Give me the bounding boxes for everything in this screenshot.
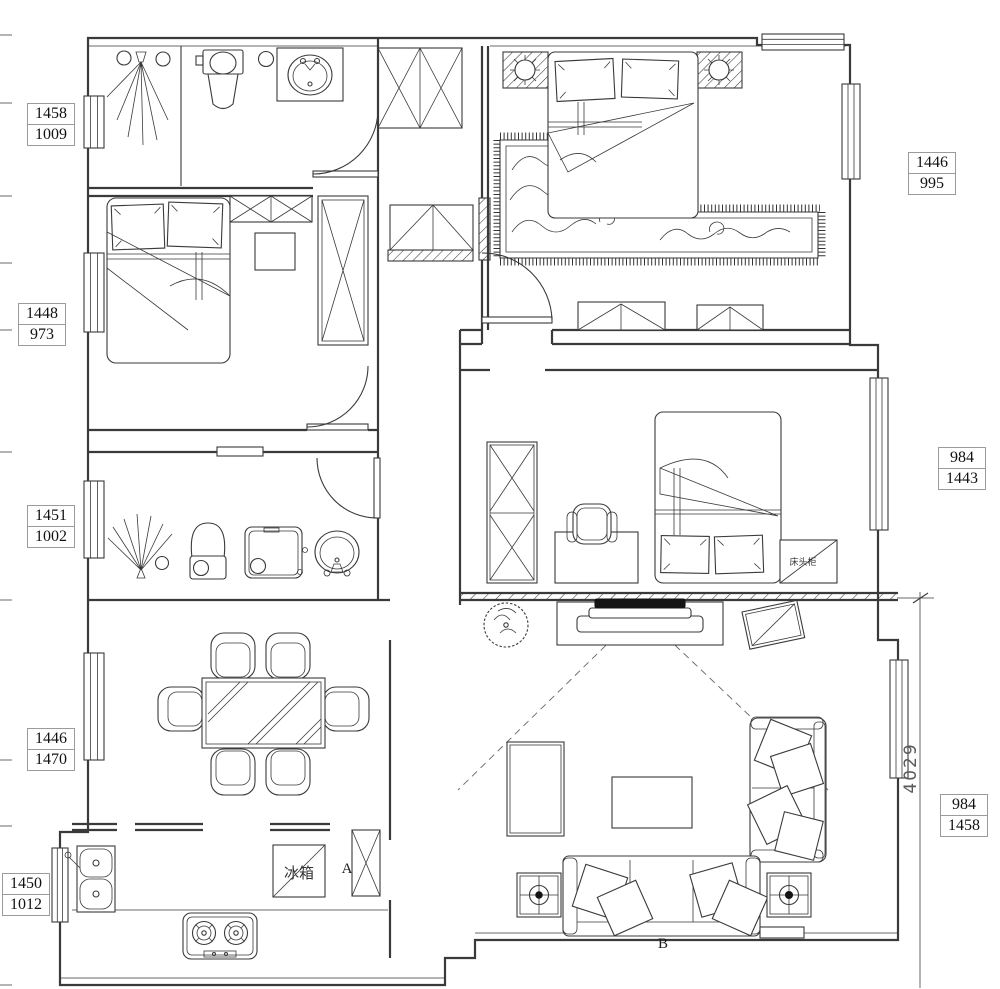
bed	[107, 198, 230, 363]
dining-chair	[211, 749, 255, 795]
dim-label-left-1: 1458 1009	[27, 103, 75, 146]
bedside-table	[255, 233, 295, 270]
dim-label-left-5: 1450 1012	[2, 873, 50, 916]
bed	[655, 412, 781, 583]
dim-value: 1450	[2, 873, 50, 895]
window-left-bath2	[84, 481, 104, 558]
bedroom-left	[107, 196, 368, 363]
dim-label-right-2: 984 1443	[938, 447, 986, 490]
dim-value: 1446	[27, 728, 75, 750]
picture-frame	[742, 600, 805, 649]
pillow	[555, 59, 615, 102]
dim-label-right-3: 984 1458	[940, 794, 988, 837]
dim-value: 1448	[18, 303, 66, 325]
kitchen-shaft-box	[352, 830, 380, 896]
window-left-dining	[84, 653, 104, 760]
marker-b-label: B	[658, 936, 668, 952]
hallway-elements	[378, 48, 473, 250]
marker-a-label: A	[342, 861, 353, 877]
wall-column-hatched	[479, 198, 490, 260]
nightstand-hatched	[697, 52, 742, 88]
pillow	[661, 536, 710, 574]
vertical-dimension-label: 4029	[901, 742, 921, 793]
wardrobe	[487, 442, 537, 583]
dim-value: 1451	[27, 505, 75, 527]
bath2-door	[317, 458, 380, 518]
wardrobe	[318, 196, 368, 345]
wall-band-hatched	[388, 250, 473, 261]
dining-room	[158, 633, 369, 795]
dimension-ticks-left	[0, 35, 12, 985]
dining-chair	[266, 749, 310, 795]
living-room: B	[458, 599, 828, 952]
toilet-icon	[190, 523, 226, 579]
loveseat	[748, 717, 826, 862]
window-right-master	[842, 84, 860, 179]
window-right-bedroom2	[870, 378, 888, 530]
dim-label-left-3: 1451 1002	[27, 505, 75, 548]
pillow	[111, 204, 165, 250]
bench-cabinet-triangle	[578, 302, 665, 330]
dining-table	[202, 678, 325, 748]
bedroom1-door	[307, 366, 368, 430]
rug	[507, 742, 564, 836]
gas-stove-icon	[183, 913, 257, 959]
dining-chair	[323, 687, 369, 731]
kitchen: 冰箱 A	[65, 830, 388, 959]
bath1-door	[313, 109, 378, 177]
dim-value: 1012	[2, 894, 50, 916]
dim-label-left-2: 1448 973	[18, 303, 66, 346]
dining-chair	[211, 633, 255, 679]
double-bed	[548, 52, 698, 218]
pillow	[621, 59, 678, 99]
sofa	[563, 856, 768, 936]
vent-sill	[217, 447, 263, 456]
window-top-master	[762, 34, 844, 50]
bedroom-right: 床头柜	[487, 412, 837, 583]
refrigerator-icon: 冰箱	[273, 845, 325, 897]
master-bedroom	[497, 52, 822, 330]
threshold-sill	[760, 927, 804, 938]
shaft-box	[378, 48, 462, 128]
kitchen-sink-icon	[65, 846, 115, 912]
dim-value: 995	[908, 173, 956, 195]
nightstand-label: 床头柜	[789, 556, 816, 567]
desk-chair	[567, 504, 617, 544]
dimension-line-right: 4029	[897, 592, 934, 988]
pillow	[167, 202, 223, 248]
dim-value: 1443	[938, 468, 986, 490]
cabinet-x-strip	[230, 196, 312, 222]
side-table-lamp	[767, 873, 811, 917]
washing-machine-icon	[245, 527, 308, 578]
nightstand-hatched	[503, 52, 548, 88]
shower-icon	[108, 514, 172, 578]
dim-value: 984	[938, 447, 986, 469]
dim-value: 984	[940, 794, 988, 816]
toilet-icon	[196, 50, 243, 109]
dining-chair	[266, 633, 310, 679]
window-kitchen	[52, 848, 68, 922]
nightstand-labeled: 床头柜	[780, 540, 837, 583]
dim-value: 1009	[27, 124, 75, 146]
bench-cabinet-triangle	[697, 305, 763, 330]
dim-value: 1458	[940, 815, 988, 837]
wash-basin-icon	[315, 531, 359, 576]
hall-cabinet-triangle	[390, 205, 473, 250]
pillow	[714, 535, 763, 574]
dining-chair	[158, 687, 204, 731]
entry-door	[482, 253, 552, 323]
dim-value: 1446	[908, 152, 956, 174]
refrigerator-label: 冰箱	[284, 865, 314, 882]
floor-plan-canvas: 冰箱 A	[0, 0, 1000, 989]
dim-value: 1458	[27, 103, 75, 125]
bathroom-middle	[108, 447, 359, 579]
floor-plan-drawing: 冰箱 A	[0, 0, 1000, 989]
bathroom-top	[107, 48, 343, 145]
dim-value: 1002	[27, 526, 75, 548]
wash-basin-icon	[259, 48, 344, 101]
window-left-bath1	[84, 96, 104, 148]
dim-label-left-4: 1446 1470	[27, 728, 75, 771]
tv-screen	[595, 599, 685, 608]
window-left-bedroom1	[84, 253, 104, 332]
dim-label-right-1: 1446 995	[908, 152, 956, 195]
dim-value: 973	[18, 324, 66, 346]
tv-unit	[557, 599, 723, 645]
side-table-lamp	[517, 873, 561, 917]
potted-plant-icon	[484, 603, 528, 647]
coffee-table	[612, 777, 692, 828]
shower-icon	[107, 51, 170, 145]
dim-value: 1470	[27, 749, 75, 771]
